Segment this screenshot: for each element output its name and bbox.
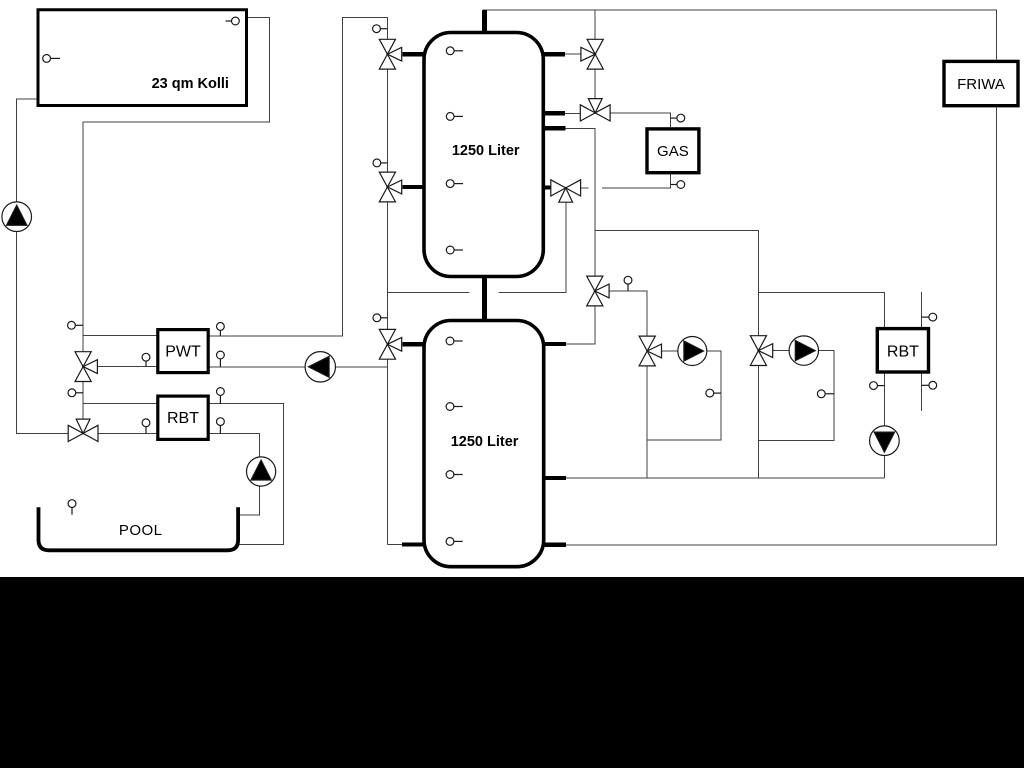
svg-text:FRIWA: FRIWA [957, 76, 1005, 93]
svg-text:1250 Liter: 1250 Liter [451, 434, 519, 450]
svg-text:GAS: GAS [657, 143, 689, 160]
svg-text:POOL: POOL [119, 522, 163, 539]
svg-text:PWT: PWT [165, 344, 201, 361]
svg-text:23 qm Kolli: 23 qm Kolli [152, 76, 229, 92]
svg-text:1250 Liter: 1250 Liter [452, 143, 520, 159]
svg-text:RBT: RBT [887, 344, 919, 361]
svg-text:RBT: RBT [167, 410, 199, 427]
